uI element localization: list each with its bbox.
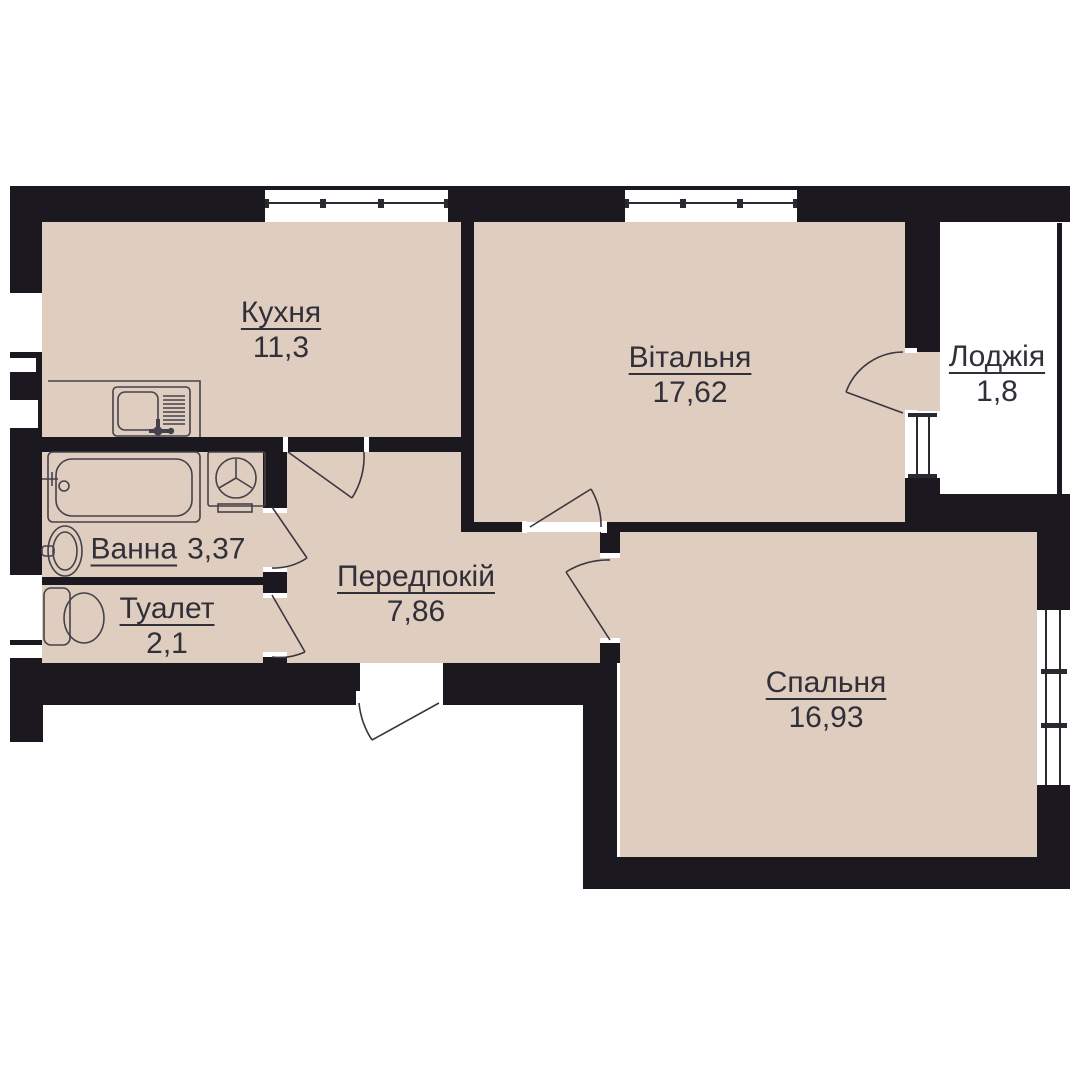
loggia-name: Лоджія (949, 339, 1045, 374)
bedroom-area: 16,93 (766, 700, 887, 735)
toilet-name: Туалет (120, 591, 215, 626)
bath-name: Ванна (91, 532, 178, 567)
living-top-window (625, 190, 797, 222)
kitchen-top-window (265, 190, 448, 222)
left-window-c (10, 400, 38, 428)
jamb (522, 521, 527, 533)
balcony-door-gap (905, 352, 940, 411)
jamb (600, 553, 620, 558)
living-label: Вітальня 17,62 (629, 340, 752, 410)
entrance-door (359, 703, 439, 740)
living-name: Вітальня (629, 340, 752, 375)
loggia-label: Лоджія 1,8 (949, 339, 1045, 409)
left-window-d (10, 575, 42, 640)
toilet-door-gap (263, 597, 287, 652)
left-window-e (10, 645, 42, 658)
kitchen-area: 11,3 (241, 330, 321, 365)
jamb (905, 348, 917, 353)
left-window-b (10, 358, 36, 372)
loggia-area: 1,8 (949, 374, 1045, 409)
jamb (263, 652, 287, 657)
hall-label: Передпокій 7,86 (337, 559, 495, 629)
bath-door-gap (263, 512, 287, 568)
jamb (601, 521, 607, 533)
bedroom-window (1037, 610, 1070, 785)
left-window-a (10, 293, 42, 352)
kitchen-label: Кухня 11,3 (241, 295, 321, 365)
loggia-glazing-line (1057, 223, 1062, 500)
bath-area: 3,37 (187, 532, 245, 567)
toilet-area: 2,1 (120, 626, 215, 661)
bedroom-door-gap (600, 558, 620, 638)
hall-area: 7,86 (337, 594, 495, 629)
kitchen-name: Кухня (241, 295, 321, 330)
bath-label: Ванна 3,37 (91, 532, 246, 567)
balcony-window (907, 413, 938, 478)
toilet-label: Туалет 2,1 (120, 591, 215, 661)
bedroom-name: Спальня (766, 665, 887, 700)
bedroom-label: Спальня 16,93 (766, 665, 887, 735)
jamb (364, 437, 369, 452)
living-area: 17,62 (629, 375, 752, 410)
floor-plan: Кухня 11,3 Вітальня 17,62 Лоджія 1,8 Ван… (0, 0, 1080, 1080)
jamb (263, 593, 287, 598)
jamb (283, 437, 288, 452)
hall-name: Передпокій (337, 559, 495, 594)
